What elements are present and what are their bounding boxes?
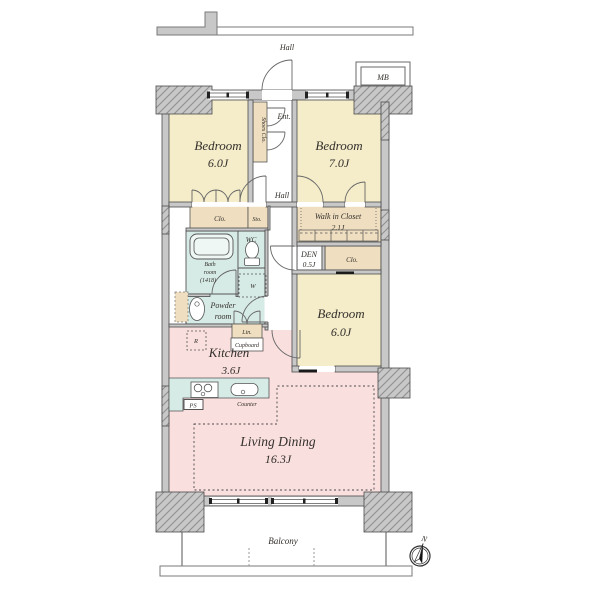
wall-right [381,90,389,506]
wall-den-closet [322,246,325,272]
bedroom2-name: Bedroom [315,138,362,153]
wall-powder-hall-a [265,230,268,296]
pipe-space-label: PS [188,403,197,410]
pillar-right-mid-3 [378,368,410,398]
powder-sink-icon [190,298,205,321]
den-door [271,246,295,270]
pillar-left-mid-1 [162,206,169,234]
window-cap [305,92,308,99]
hall-label: Hall [274,191,290,200]
opening-bedroom2 [297,202,323,206]
opening-front-door [262,90,292,100]
window-bedroom2 [305,91,349,100]
front-door [262,60,292,90]
wall-mid-b [266,202,297,207]
den-size: 0.5J [303,260,316,269]
wall-bath-powder-a [186,294,210,297]
powder-label-1: Powder [210,301,237,310]
balcony-rail [160,566,412,576]
shoes-door-lower [267,132,285,150]
wall-powder-kitchen-b [262,324,268,327]
counter-label: Counter [237,402,257,408]
wic-size: 2.1J [332,223,345,232]
wall-bedroom1-hall [248,100,253,206]
wall-sto-hall [268,206,270,230]
bedroom1-name: Bedroom [194,138,241,153]
bedroom3-slider-mark [299,370,317,373]
wall-bath-top [186,228,268,231]
pillar-left-mid-2 [162,386,169,426]
toilet-bowl-icon [246,242,259,259]
corridor-hall-label: Hall [279,43,295,52]
refrigerator-label: R [193,338,198,345]
bedroom1-size: 6.0J [208,156,229,170]
bedroom2-size: 7.0J [329,156,350,170]
wall-mid-a [169,202,192,207]
wall-mid-d [365,202,381,207]
wall-hall-bedroom2 [292,100,297,368]
compass: N [408,532,435,568]
wall-wic-bottom [297,242,381,246]
toilet-tank-icon [245,258,260,266]
window-sash [326,93,329,98]
window-cap [209,498,212,504]
window-bedroom1 [207,91,249,100]
opening-wic [345,202,365,206]
opening-den [293,247,297,270]
pillar-bottom-left [156,492,204,532]
floorplan-canvas: Hall MB [0,0,600,600]
pillar-right-mid-1 [381,102,389,140]
closet-left-label: Clo. [214,215,226,223]
opening-bedroom1 [192,202,266,206]
wall-bedroom3-bottom-b [335,366,381,372]
window-cap [346,92,349,99]
balcony-label: Balcony [268,536,298,546]
wall-bath-powder-b [236,294,238,297]
living-dining-name: Living Dining [239,434,316,449]
kitchen-name: Kitchen [208,345,249,360]
linen-label: Lin. [241,330,252,336]
pillar-right-mid-2 [381,210,389,240]
corridor-wall [157,12,217,35]
kitchen-sink-icon [231,384,258,396]
entrance-label: Ent. [276,112,290,121]
window-sash [237,499,240,504]
window-sash [303,499,306,504]
wic-name: Walk in Closet [315,212,362,221]
window-cap [271,498,274,504]
wall-mid-c [323,202,345,207]
window-cap [246,92,249,99]
den-name: DEN [300,250,318,259]
bedroom3-name: Bedroom [317,306,364,321]
common-corridor: Hall [157,12,413,52]
wall-powder-kitchen-a [169,324,232,327]
storage-small-label: Sto. [252,217,261,223]
window-living-1 [209,497,268,505]
meter-box-label: MB [376,73,389,82]
meter-box: MB [356,62,410,89]
window-cap [207,92,210,99]
bath-label-1: Bath [204,262,215,268]
living-dining-size: 16.3J [265,452,292,466]
wc-label: WC [246,236,257,244]
window-cap [265,498,268,504]
window-cap [335,498,338,504]
kitchen-size: 3.6J [221,365,242,377]
closet-right-label: Clo. [346,256,358,264]
opening-powder [265,296,269,322]
bedroom3-size: 6.0J [331,325,352,339]
floorplan-page: Hall MB [0,0,600,600]
pillar-bottom-right [364,492,412,532]
balcony-partition-marks [249,548,314,566]
wall-left [162,90,169,506]
bath-label-2: room [204,270,217,276]
window-living-2 [271,497,338,505]
bath-label-3: (1418) [200,277,216,284]
window-sash [227,93,230,98]
closet-slider-mark [336,272,354,275]
shoes-closet-label: Shoes Clo. [260,117,266,143]
powder-label-2: room [215,312,232,321]
compass-north-label: N [420,534,429,544]
pillar-top-left [156,86,212,114]
wall-bedroom3-bottom-a [292,366,299,372]
washer-label: W [250,283,256,290]
storage-nook [175,292,188,322]
